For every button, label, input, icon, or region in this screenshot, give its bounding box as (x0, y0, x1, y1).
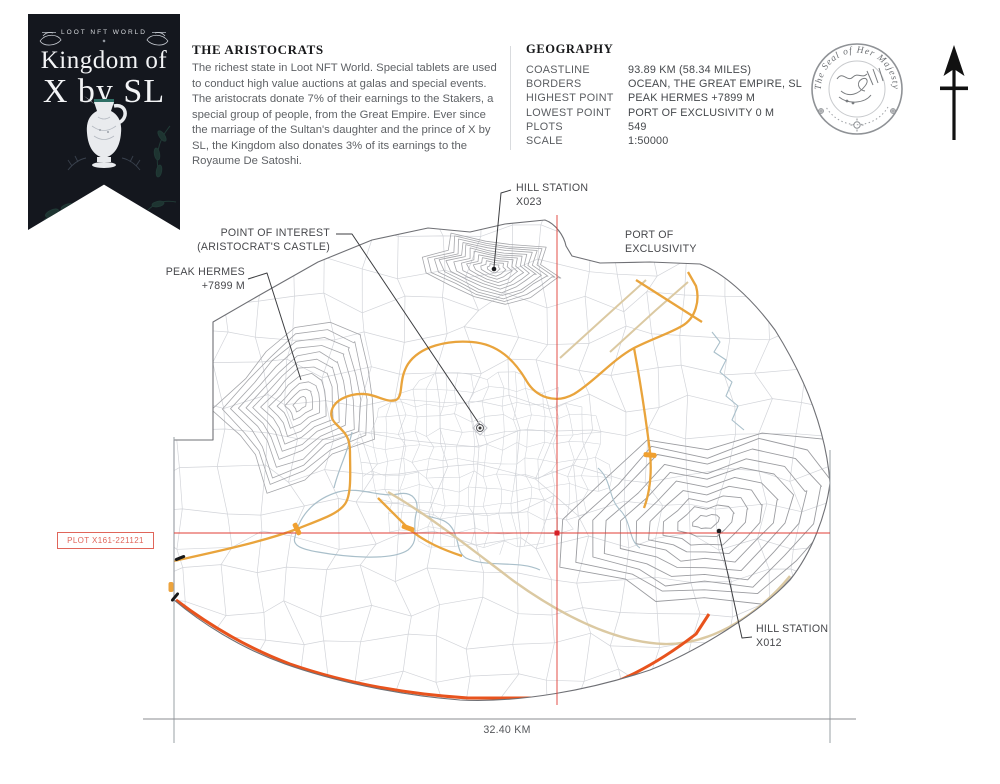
geography-table: COASTLINE93.89 KM (58.34 MILES) BORDERSO… (526, 63, 826, 148)
geo-value: PEAK HERMES +7899 M (628, 91, 755, 105)
geo-label: LOWEST POINT (526, 106, 628, 120)
geo-label: PLOTS (526, 120, 628, 134)
table-row: COASTLINE93.89 KM (58.34 MILES) (526, 63, 826, 77)
label-peak-hermes: PEAK HERMES +7899 M (145, 266, 245, 294)
label-line: +7899 M (145, 280, 245, 294)
table-row: LOWEST POINTPORT OF EXCLUSIVITY 0 M (526, 106, 826, 120)
seal-signature-icon (837, 68, 883, 104)
table-row: HIGHEST POINTPEAK HERMES +7899 M (526, 91, 826, 105)
banner-rule-left (42, 32, 56, 33)
label-line: (ARISTOCRAT'S CASTLE) (170, 241, 330, 255)
label-line: X023 (516, 196, 588, 210)
geo-value: 1:50000 (628, 134, 668, 148)
crosshair-center-marker (555, 531, 560, 536)
geo-label: SCALE (526, 134, 628, 148)
label-line: PORT OF (625, 229, 697, 243)
label-hill-station-x012: HILL STATION X012 (756, 623, 828, 651)
label-line: PEAK HERMES (145, 266, 245, 280)
banner-kicker-row: LOOT NFT WORLD (28, 29, 180, 36)
geography-heading: GEOGRAPHY (526, 42, 613, 57)
banner-title-line2: X by SL (28, 73, 180, 111)
header-divider (510, 46, 511, 150)
seal-text: The Seal of Her Majesty (814, 45, 900, 90)
hill-x012-point (717, 529, 722, 534)
label-hill-station-x023: HILL STATION X023 (516, 182, 588, 210)
table-row: BORDERSOCEAN, THE GREAT EMPIRE, SL (526, 77, 826, 91)
geo-label: HIGHEST POINT (526, 91, 628, 105)
geo-value: 93.89 KM (58.34 MILES) (628, 63, 751, 77)
label-line: POINT OF INTEREST (170, 227, 330, 241)
sprig-icon (68, 156, 140, 170)
banner-ornament: ◆ (28, 38, 180, 43)
geo-value: OCEAN, THE GREAT EMPIRE, SL (628, 77, 802, 91)
banner-rule-right (152, 32, 166, 33)
label-line: HILL STATION (756, 623, 828, 637)
label-line: HILL STATION (516, 182, 588, 196)
bridge-markers (169, 452, 657, 602)
table-row: SCALE1:50000 (526, 134, 826, 148)
seal-rosette-icon (819, 109, 896, 132)
river-water (294, 332, 744, 570)
svg-text:The Seal of Her Majesty: The Seal of Her Majesty (814, 45, 900, 90)
banner-kicker: LOOT NFT WORLD (61, 29, 147, 36)
geo-value: PORT OF EXCLUSIVITY 0 M (628, 106, 774, 120)
scale-distance-label: 32.40 KM (447, 724, 567, 738)
hill-x023-point (492, 267, 497, 272)
banner-title-line1: Kingdom of (28, 47, 180, 75)
label-line: EXCLUSIVITY (625, 243, 697, 257)
plot-tag-badge[interactable]: PLOT X161-221121 (57, 532, 154, 549)
geo-label: COASTLINE (526, 63, 628, 77)
geo-label: BORDERS (526, 77, 628, 91)
seal-of-her-majesty: The Seal of Her Majesty (801, 33, 913, 145)
table-row: PLOTS549 (526, 120, 826, 134)
about-heading: THE ARISTOCRATS (192, 42, 324, 58)
label-line: X012 (756, 637, 828, 651)
island-terrain (143, 190, 881, 754)
north-arrow-icon (932, 30, 976, 140)
kingdom-map-page: { "banner": { "kicker": "LOOT NFT WORLD"… (0, 0, 1000, 784)
parcel-mesh (143, 190, 881, 754)
label-point-of-interest: POINT OF INTEREST (ARISTOCRAT'S CASTLE) (170, 227, 330, 255)
castle-point-inner (479, 427, 482, 430)
about-body: The richest state in Loot NFT World. Spe… (192, 61, 500, 170)
label-port-of-exclusivity: PORT OF EXCLUSIVITY (625, 229, 697, 257)
geo-value: 549 (628, 120, 647, 134)
